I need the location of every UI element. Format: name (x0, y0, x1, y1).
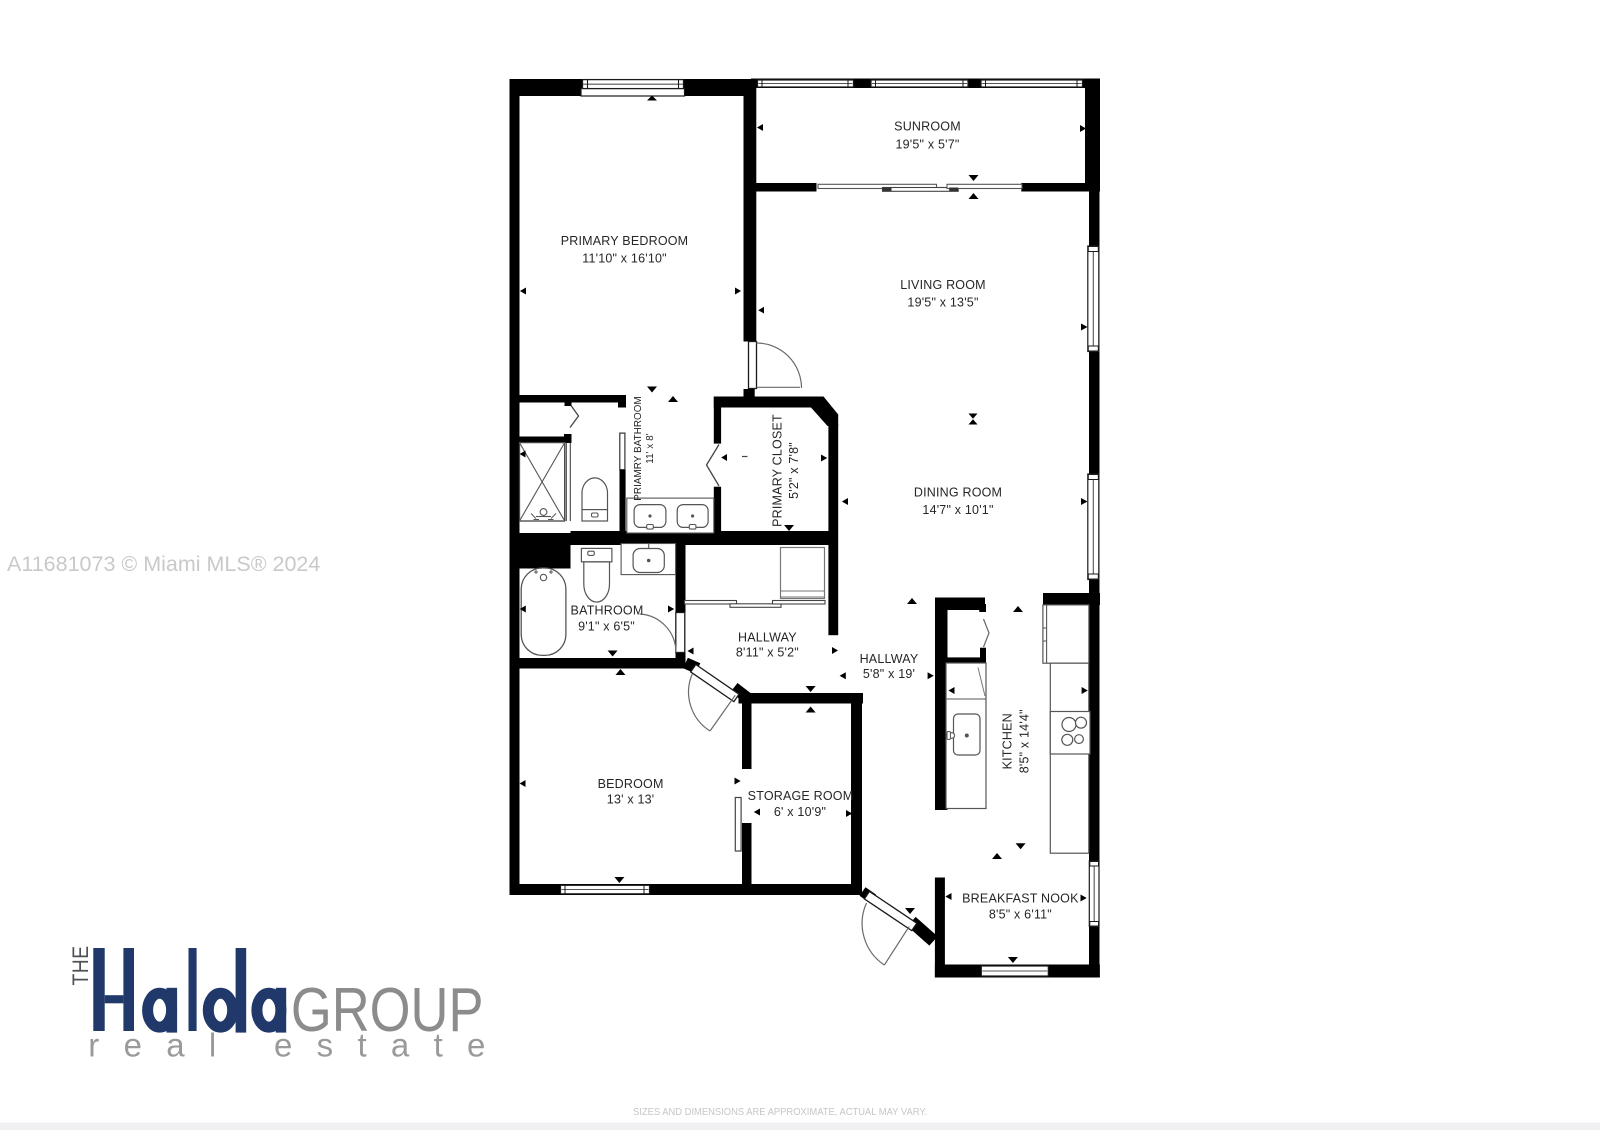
svg-text:BREAKFAST NOOK: BREAKFAST NOOK (962, 892, 1079, 906)
svg-text:DINING ROOM: DINING ROOM (914, 486, 1002, 500)
svg-text:HALLWAY: HALLWAY (738, 631, 797, 645)
svg-text:5'2" x 7'8": 5'2" x 7'8" (787, 442, 801, 499)
svg-text:STORAGE ROOM: STORAGE ROOM (748, 789, 854, 803)
svg-text:SUNROOM: SUNROOM (894, 120, 961, 134)
svg-text:5'8" x 19': 5'8" x 19' (863, 667, 915, 681)
svg-text:PRIMARY CLOSET: PRIMARY CLOSET (771, 414, 785, 527)
svg-text:14'7" x 10'1": 14'7" x 10'1" (922, 503, 993, 517)
svg-text:13' x 13': 13' x 13' (607, 793, 655, 807)
svg-text:LIVING ROOM: LIVING ROOM (900, 278, 986, 292)
svg-text:11' x 8': 11' x 8' (645, 433, 656, 464)
svg-text:8'11" x 5'2": 8'11" x 5'2" (736, 646, 799, 660)
svg-text:BATHROOM: BATHROOM (571, 604, 644, 618)
svg-text:9'1" x 6'5": 9'1" x 6'5" (578, 620, 635, 634)
svg-text:HALLWAY: HALLWAY (860, 652, 919, 666)
svg-text:KITCHEN: KITCHEN (1001, 713, 1015, 769)
svg-text:A11681073 © Miami MLS® 2024: A11681073 © Miami MLS® 2024 (7, 552, 320, 576)
svg-text:real estate: real estate (88, 1027, 509, 1064)
svg-text:19'5" x 13'5": 19'5" x 13'5" (907, 296, 978, 310)
svg-text:SIZES AND DIMENSIONS ARE APPRO: SIZES AND DIMENSIONS ARE APPROXIMATE, AC… (633, 1106, 927, 1118)
svg-text:PRIMARY BEDROOM: PRIMARY BEDROOM (561, 234, 689, 248)
svg-text:6' x 10'9": 6' x 10'9" (774, 805, 826, 819)
svg-text:PRIAMRY BATHROOM: PRIAMRY BATHROOM (633, 396, 644, 500)
svg-text:11'10" x 16'10": 11'10" x 16'10" (582, 252, 667, 266)
svg-text:8'5" x 14'4": 8'5" x 14'4" (1018, 709, 1032, 773)
svg-text:THE: THE (68, 946, 93, 986)
svg-text:BEDROOM: BEDROOM (598, 777, 664, 791)
svg-text:8'5" x 6'11": 8'5" x 6'11" (989, 908, 1052, 922)
svg-text:19'5" x 5'7": 19'5" x 5'7" (895, 138, 959, 152)
